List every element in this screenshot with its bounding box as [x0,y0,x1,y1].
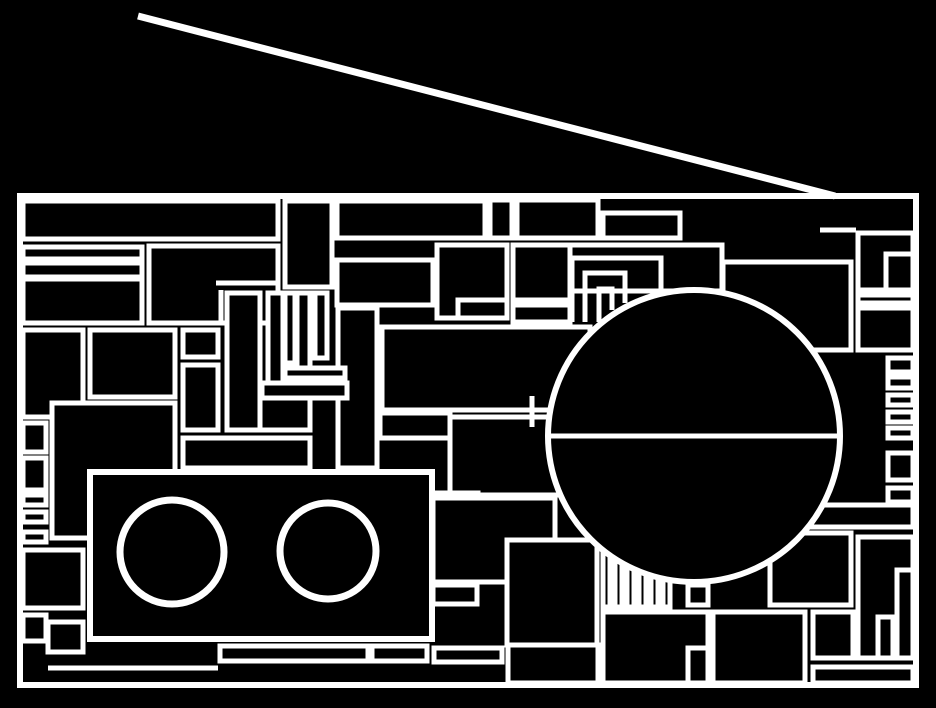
panel-rect-20 [858,295,913,303]
panel-rect-51 [260,398,310,430]
panel-rect-29 [811,505,913,527]
panel-rect-41 [90,330,175,397]
panel-rect-23 [888,377,913,388]
panel-rect-1 [23,247,142,259]
panel-rect-38 [688,648,708,683]
panel-rect-10 [565,245,722,291]
panel-rect-7 [490,200,512,238]
panel-rect-49 [285,368,345,378]
panel-rect-28 [888,488,913,502]
panel-rect-63 [380,413,450,438]
panel-rect-64 [450,417,560,495]
panel-rect-47 [297,293,310,375]
panel-rect-13 [513,245,570,300]
panel-rect-60 [23,615,46,641]
panel-rect-9 [603,213,680,238]
panel-rect-12 [458,300,507,318]
panel-rect-45 [268,293,283,388]
panel-rect-34 [813,612,853,658]
panel-rect-57 [23,512,46,522]
panel-rect-54 [23,423,46,452]
cassette-deck [90,472,432,639]
panel-rect-77 [372,646,427,661]
panel-rect-44 [227,293,260,430]
panel-rect-0 [23,201,278,239]
panel-rect-61 [48,622,83,652]
speaker [548,290,840,582]
panel-rect-3 [23,279,142,323]
panel-rect-43 [183,365,218,430]
panel-rect-39 [688,585,708,605]
panel-rect-55 [23,458,46,490]
panel-rect-78 [508,645,598,683]
panel-rect-48 [315,293,327,358]
panel-rect-27 [888,453,913,480]
panel-rect-69 [434,648,502,662]
panel-rect-19 [886,254,913,290]
panel-rect-26 [888,428,913,438]
panel-rect-25 [888,412,913,422]
panel-rect-42 [183,330,218,357]
cassette-reel-right [280,503,376,599]
panel-rect-36 [713,612,805,683]
panel-rect-8 [517,200,598,238]
panel-rect-35 [813,667,913,683]
panel-rect-32 [878,617,893,658]
panel-rect-58 [23,532,46,542]
panel-rect-59 [23,550,83,608]
panel-rect-67 [507,540,597,645]
panel-rect-24 [888,395,913,405]
panel-rect-6 [337,201,485,238]
panel-rect-5 [285,201,332,287]
panel-rect-68 [433,585,477,604]
panel-rect-15 [337,260,433,305]
panel-rect-56 [23,495,46,505]
panel-rect-14 [513,305,570,322]
line-art-canvas [0,0,936,708]
panel-rect-21 [858,308,913,350]
radio-line-art [0,0,936,708]
panel-rect-33 [897,570,913,658]
cassette-reel-left [120,500,224,604]
panel-rect-2 [23,263,142,277]
panel-rect-52 [183,438,310,468]
panel-rect-22 [888,358,913,372]
panel-rect-76 [220,646,368,661]
panel-rect-46 [285,293,295,363]
